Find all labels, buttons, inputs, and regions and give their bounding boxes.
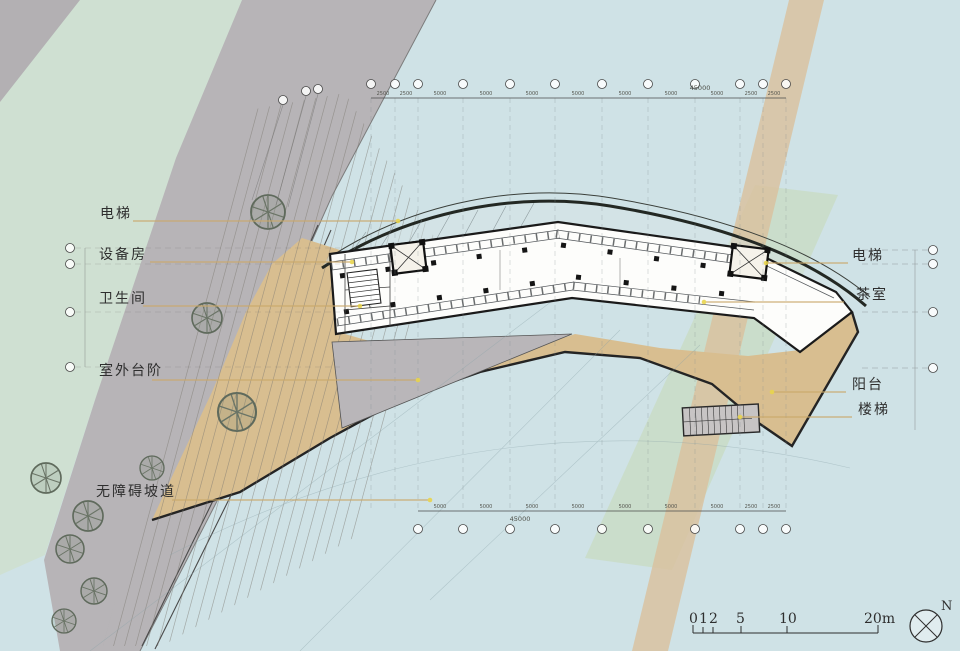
svg-text:5000: 5000 [572,91,585,97]
svg-text:45000: 45000 [690,84,711,92]
svg-text:2500: 2500 [377,91,390,97]
callout-tea-room: 茶室 [856,284,888,304]
svg-text:5000: 5000 [619,91,632,97]
svg-text:5000: 5000 [434,504,447,510]
north-label: N [941,599,952,614]
svg-text:5000: 5000 [572,504,585,510]
scale-tick-10: 10 [779,611,797,627]
callout-elevator-right: 电梯 [852,245,884,265]
svg-text:5000: 5000 [665,91,678,97]
svg-text:2500: 2500 [768,504,781,510]
svg-text:5000: 5000 [480,504,493,510]
svg-text:2500: 2500 [400,91,413,97]
scale-tick-0: 0 [689,611,698,627]
svg-text:5000: 5000 [434,91,447,97]
plan-drawing: 2500 2500 5000 5000 5000 5000 5000 5000 … [0,0,960,651]
svg-text:5000: 5000 [711,504,724,510]
elevator-shaft-left [388,239,429,276]
svg-text:5000: 5000 [665,504,678,510]
callout-restroom: 卫生间 [99,288,147,308]
north-arrow-icon [910,610,942,642]
svg-text:5000: 5000 [711,91,724,97]
callout-elevator-left: 电梯 [100,203,132,223]
scale-tick-5: 5 [736,611,745,627]
external-stair [682,404,759,436]
svg-text:5000: 5000 [619,504,632,510]
svg-text:45000: 45000 [510,515,531,523]
callout-stairs: 楼梯 [858,399,890,419]
svg-text:5000: 5000 [526,504,539,510]
scale-tick-2: 2 [709,611,718,627]
scale-tick-20m: 20m [864,611,895,627]
svg-text:5000: 5000 [480,91,493,97]
callout-equipment-room: 设备房 [99,244,147,264]
callout-outdoor-steps: 室外台阶 [99,360,163,380]
floor-plan-canvas: 2500 2500 5000 5000 5000 5000 5000 5000 … [0,0,960,651]
svg-text:2500: 2500 [768,91,781,97]
svg-text:2500: 2500 [745,91,758,97]
stair-core [347,269,381,306]
svg-text:5000: 5000 [526,91,539,97]
callout-accessible-ramp: 无障碍坡道 [96,481,176,501]
scale-tick-1: 1 [699,611,708,627]
svg-text:2500: 2500 [745,504,758,510]
callout-balcony: 阳台 [852,374,884,394]
